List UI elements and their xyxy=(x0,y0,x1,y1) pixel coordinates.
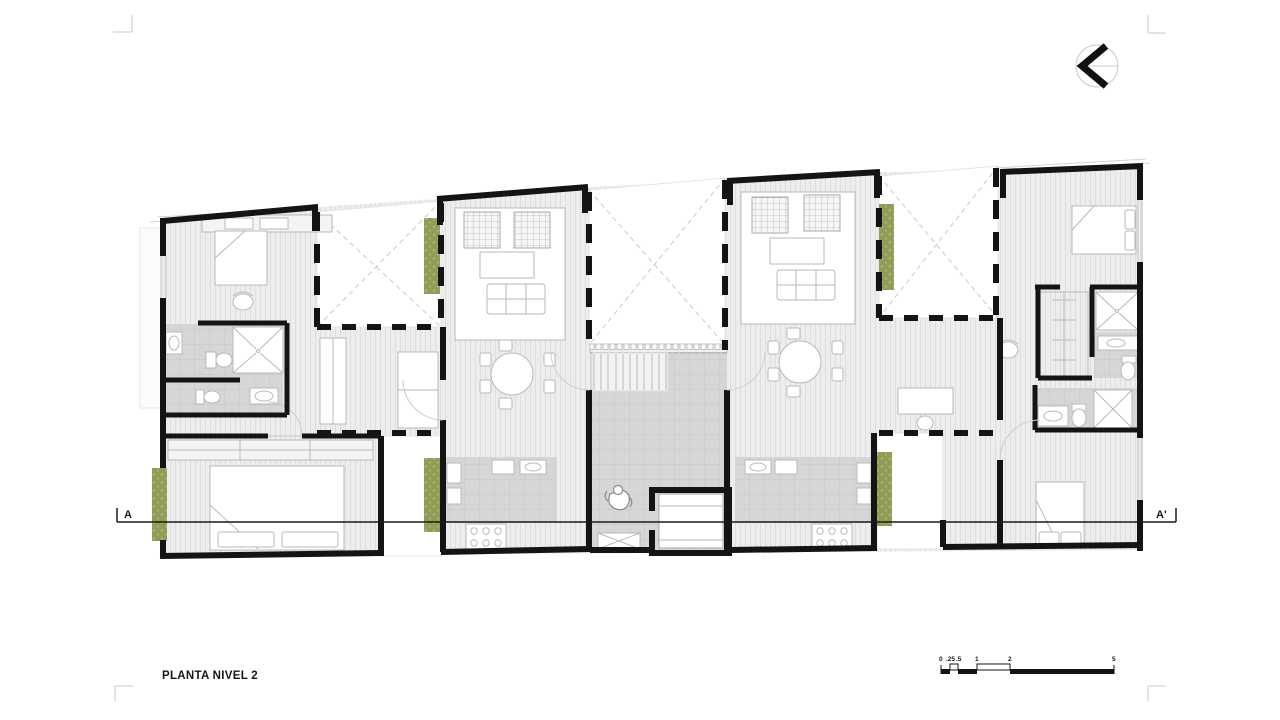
scale-tick-05: .5 xyxy=(956,656,962,663)
bed xyxy=(215,231,267,285)
sink xyxy=(166,332,182,354)
toilet-2 xyxy=(204,391,220,403)
scale-tick-2: 2 xyxy=(1008,656,1012,663)
kitchen-sink xyxy=(745,460,771,474)
lounge-chair xyxy=(233,294,253,310)
pillow xyxy=(218,532,274,547)
toilet xyxy=(1121,362,1135,380)
page-title: PLANTA NIVEL 2 xyxy=(162,670,258,682)
coffee-table xyxy=(770,238,824,264)
dining-table xyxy=(779,341,821,383)
north-arrow-icon xyxy=(1076,45,1118,87)
scale-tick-1: 1 xyxy=(975,656,979,663)
fridge xyxy=(447,463,461,483)
desk xyxy=(898,388,953,414)
vanity-2 xyxy=(1038,406,1068,426)
fridge xyxy=(857,463,871,483)
scale-tick-5: 5 xyxy=(1112,656,1116,663)
planter xyxy=(152,468,167,541)
void-terraces xyxy=(317,166,998,345)
coffee-table xyxy=(480,252,534,278)
armchair xyxy=(804,195,840,231)
scale-bar: 0 .25 .5 1 2 5 xyxy=(939,656,1116,674)
desk-chair xyxy=(917,416,933,430)
armchair xyxy=(752,197,788,233)
section-label-a-prime: A' xyxy=(1156,509,1167,521)
scale-tick-0: 0 xyxy=(939,656,943,663)
planter xyxy=(424,218,440,294)
scale-tick-025: .25 xyxy=(946,656,955,663)
pillow xyxy=(282,532,338,547)
sink-2 xyxy=(250,388,278,404)
armchair xyxy=(464,212,500,248)
toilet-2 xyxy=(1072,409,1086,427)
exterior-ledge xyxy=(140,228,162,408)
floor-plan-drawing: A A' PLANTA NIVEL 2 0 .25 .5 1 2 5 xyxy=(0,0,1280,720)
planter xyxy=(876,452,892,526)
planter xyxy=(424,458,440,532)
armchair xyxy=(514,212,550,248)
bridge-railing xyxy=(590,344,727,353)
toilet-tank xyxy=(206,352,216,368)
pillow xyxy=(1125,231,1135,250)
appliance xyxy=(492,460,514,474)
kitchen-sink xyxy=(520,460,546,474)
toilet xyxy=(216,353,232,367)
section-label-a: A xyxy=(124,509,132,521)
void-terrace-1 xyxy=(317,201,441,327)
vanity xyxy=(1098,336,1138,350)
dining-table xyxy=(491,353,533,395)
pillow xyxy=(1125,210,1135,229)
appliance xyxy=(775,460,797,474)
